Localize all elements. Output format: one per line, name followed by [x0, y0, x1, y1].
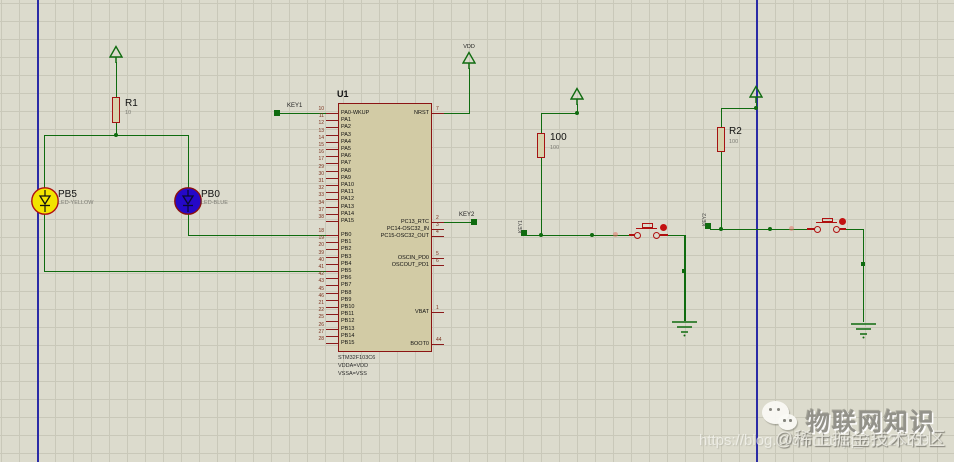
- r2-value: 100: [729, 139, 738, 145]
- pin-stub: [326, 149, 338, 150]
- wire: [845, 229, 864, 231]
- pin-number: 32: [306, 185, 324, 191]
- power-symbol[interactable]: [749, 85, 763, 103]
- wire: [541, 113, 543, 133]
- junction-dot: [768, 227, 772, 231]
- wire: [541, 158, 543, 236]
- junction-dot: [719, 227, 723, 231]
- wire: [444, 113, 470, 115]
- wire: [721, 108, 723, 127]
- led-blue[interactable]: [173, 186, 203, 216]
- button-lead: [840, 228, 846, 230]
- led-blue-ref: PB0: [201, 189, 228, 200]
- pin-stub: [432, 344, 444, 345]
- resistor-r1[interactable]: [112, 97, 120, 123]
- terminal-key1[interactable]: [274, 110, 280, 116]
- pin-number: 29: [306, 164, 324, 170]
- wire: [469, 68, 471, 113]
- resistor-r2[interactable]: [717, 127, 725, 152]
- pin-name: PA7: [341, 160, 351, 166]
- button-contact: [634, 232, 641, 239]
- sheet-border-left: [37, 0, 39, 462]
- junction-dot: [754, 106, 758, 110]
- sheet-border-right: [756, 0, 758, 462]
- pin-stub: [326, 278, 338, 279]
- pin-number: 1: [436, 305, 454, 311]
- led-yellow[interactable]: [30, 186, 60, 216]
- pin-number: 10: [306, 106, 324, 112]
- pin-stub: [326, 120, 338, 121]
- chip-part: STM32F103C6: [338, 354, 375, 362]
- pin-number: 7: [436, 106, 454, 112]
- pin-number: 45: [306, 286, 324, 292]
- button-contact: [653, 232, 660, 239]
- pin-stub: [326, 207, 338, 208]
- pin-number: 22: [306, 307, 324, 313]
- pin-name: OSCIN_PD0: [330, 255, 429, 261]
- pin-number: 31: [306, 178, 324, 184]
- watermark-title: 物联网知识: [806, 402, 936, 437]
- pin-name: PA10: [341, 182, 354, 188]
- pin-name: NRST: [330, 110, 429, 116]
- wire: [684, 235, 686, 321]
- key1-vertical-label: KEY1: [518, 220, 524, 233]
- key1-label: KEY1: [287, 103, 302, 109]
- pin-number: 12: [306, 120, 324, 126]
- pin-number: 30: [306, 171, 324, 177]
- pin-name: PB2: [341, 246, 351, 252]
- pin-stub: [326, 321, 338, 322]
- button-actuator: [636, 228, 657, 229]
- pin-name: PB7: [341, 282, 351, 288]
- button-cap: [822, 218, 833, 223]
- pin-stub: [326, 285, 338, 286]
- pin-name: PA14: [341, 211, 354, 217]
- button-state-dot: [839, 218, 846, 225]
- pin-stub: [326, 271, 338, 272]
- pin-name: PA13: [341, 204, 354, 210]
- key2-label: KEY2: [459, 212, 474, 218]
- pin-name: PA4: [341, 139, 351, 145]
- pin-number: 16: [306, 149, 324, 155]
- pin-name: PB13: [341, 326, 354, 332]
- pin-number: 26: [306, 322, 324, 328]
- pin-stub: [432, 312, 444, 313]
- junction-dot: [114, 133, 118, 137]
- pin-number: 19: [306, 235, 324, 241]
- pin-number: 18: [306, 228, 324, 234]
- pin-name: OSCOUT_PD1: [330, 262, 429, 268]
- pin-name: PC14-OSC32_IN: [330, 226, 429, 232]
- pin-name: PB8: [341, 290, 351, 296]
- r2-ref: R2: [729, 126, 742, 137]
- pin-number: 11: [306, 113, 324, 119]
- pin-name: PC13_RTC: [330, 219, 429, 225]
- rkey1-ref: 100: [550, 132, 567, 143]
- button-contact: [833, 226, 840, 233]
- pin-name: PA1: [341, 117, 351, 123]
- chip-ref: U1: [337, 89, 349, 99]
- pin-stub: [326, 199, 338, 200]
- r1-value: 10: [125, 110, 131, 116]
- pin-stub: [326, 192, 338, 193]
- pin-stub: [326, 142, 338, 143]
- schematic-canvas[interactable]: VDD R1 10 100 100 R2 100 PB5 LED-YELLOW …: [0, 0, 954, 462]
- pin-name: PA2: [341, 124, 351, 130]
- wire: [863, 229, 865, 322]
- pin-number: 39: [306, 250, 324, 256]
- pin-name: PA3: [341, 132, 351, 138]
- wire: [668, 235, 685, 237]
- resistor-key1-pullup[interactable]: [537, 133, 545, 158]
- pin-name: PB6: [341, 275, 351, 281]
- terminal-key2[interactable]: [471, 219, 477, 225]
- pin-stub: [326, 300, 338, 301]
- wire: [721, 108, 757, 110]
- wire: [116, 62, 118, 97]
- pin-number: 37: [306, 207, 324, 213]
- pin-stub: [326, 307, 338, 308]
- pin-name: PA11: [341, 189, 354, 195]
- led-blue-type: LED-BLUE: [201, 200, 228, 206]
- power-symbol-vdd[interactable]: [462, 51, 476, 69]
- pin-stub: [326, 135, 338, 136]
- pin-stub: [432, 113, 444, 114]
- pin-number: 3: [436, 222, 454, 228]
- pin-stub: [326, 242, 338, 243]
- pin-name: PB5: [341, 268, 351, 274]
- junction-dot: [590, 233, 594, 237]
- pin-name: PB12: [341, 318, 354, 324]
- wire: [44, 135, 46, 188]
- pin-number: 4: [436, 229, 454, 235]
- junction-dot: [575, 111, 579, 115]
- wire: [44, 271, 327, 273]
- pin-name: PA12: [341, 196, 354, 202]
- pin-number: 20: [306, 242, 324, 248]
- pin-name: PC15-OSC32_OUT: [330, 233, 429, 239]
- pin-number: 14: [306, 135, 324, 141]
- pin-number: 21: [306, 300, 324, 306]
- junction-marker: [861, 262, 865, 266]
- button-actuator: [816, 222, 837, 223]
- pin-name: PB14: [341, 333, 354, 339]
- button-contact: [814, 226, 821, 233]
- pin-name: VBAT: [330, 309, 429, 315]
- vdd-label: VDD: [458, 44, 480, 50]
- wire: [541, 113, 578, 115]
- junction-marker: [682, 269, 686, 273]
- pin-name: PA6: [341, 153, 351, 159]
- pin-stub: [326, 329, 338, 330]
- pin-stub: [326, 249, 338, 250]
- pin-stub: [326, 293, 338, 294]
- pin-name: BOOT0: [330, 341, 429, 347]
- wire: [44, 213, 46, 272]
- pin-number: 41: [306, 264, 324, 270]
- pin-number: 5: [436, 251, 454, 257]
- pin-name: PA5: [341, 146, 351, 152]
- pin-number: 43: [306, 278, 324, 284]
- key2-vertical-label: KEY2: [702, 213, 708, 226]
- button-state-dot: [660, 224, 667, 231]
- led-yellow-ref: PB5: [58, 189, 93, 200]
- pin-number: 13: [306, 128, 324, 134]
- pin-stub: [326, 163, 338, 164]
- pin-name: PA9: [341, 175, 351, 181]
- pin-number: 15: [306, 142, 324, 148]
- pin-stub: [326, 185, 338, 186]
- pin-name: PB1: [341, 239, 351, 245]
- pin-number: 2: [436, 215, 454, 221]
- pin-number: 27: [306, 329, 324, 335]
- pin-stub: [326, 336, 338, 337]
- pin-number: 42: [306, 271, 324, 277]
- pin-number: 17: [306, 156, 324, 162]
- pin-stub: [432, 236, 444, 237]
- wire: [188, 213, 190, 236]
- ground-symbol[interactable]: [850, 322, 877, 340]
- pin-stub: [326, 127, 338, 128]
- pin-number: 34: [306, 200, 324, 206]
- wire: [721, 152, 723, 230]
- pin-number: 44: [436, 337, 454, 343]
- pin-number: 6: [436, 258, 454, 264]
- pin-stub: [326, 171, 338, 172]
- junction-dot: [539, 233, 543, 237]
- power-symbol[interactable]: [570, 87, 584, 105]
- rkey1-value: 100: [550, 145, 559, 151]
- pin-number: 25: [306, 314, 324, 320]
- pin-stub: [326, 214, 338, 215]
- chip-note2: VSSA=VSS: [338, 370, 375, 378]
- pin-stub: [326, 178, 338, 179]
- pin-number: 46: [306, 293, 324, 299]
- wire: [188, 135, 190, 188]
- pin-number: 33: [306, 192, 324, 198]
- pin-number: 28: [306, 336, 324, 342]
- pin-number: 38: [306, 214, 324, 220]
- led-yellow-type: LED-YELLOW: [58, 200, 93, 206]
- pin-number: 40: [306, 257, 324, 263]
- pin-stub: [432, 265, 444, 266]
- button-lead: [660, 234, 668, 236]
- button-cap: [642, 223, 653, 228]
- probe-dot: [789, 226, 794, 231]
- power-symbol[interactable]: [109, 45, 123, 63]
- pin-stub: [326, 156, 338, 157]
- pin-name: PA8: [341, 168, 351, 174]
- r1-ref: R1: [125, 98, 138, 109]
- ground-symbol[interactable]: [671, 320, 698, 338]
- probe-dot: [613, 232, 618, 237]
- chip-note1: VDDA=VDD: [338, 362, 375, 370]
- pin-name: PB9: [341, 297, 351, 303]
